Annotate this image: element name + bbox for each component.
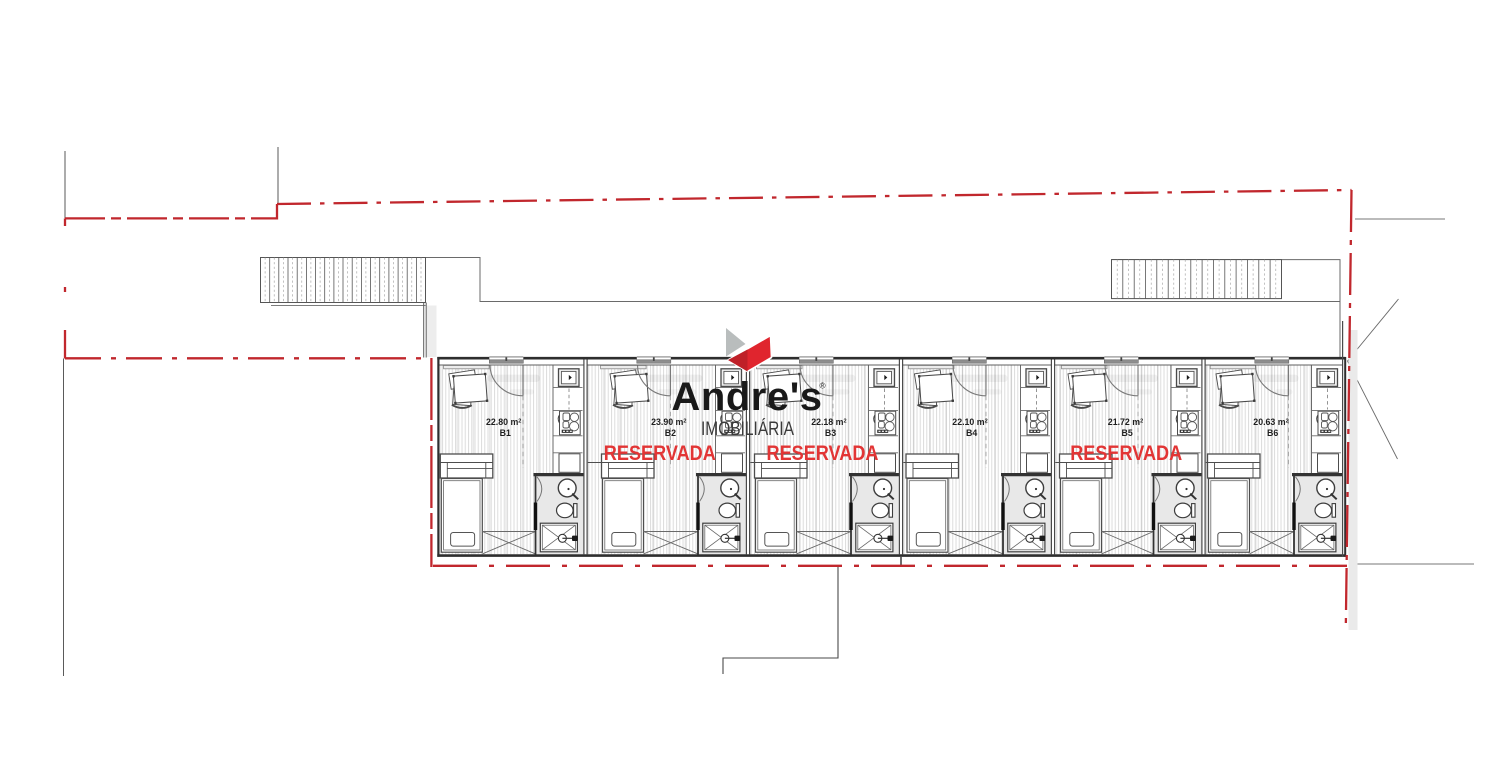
svg-text:RESERVADA: RESERVADA <box>604 442 716 465</box>
svg-text:Andre's: Andre's <box>671 375 822 419</box>
svg-text:21.72 m2: 21.72 m2 <box>1108 417 1143 427</box>
svg-text:B2: B2 <box>665 428 676 438</box>
svg-text:20.63 m2: 20.63 m2 <box>1253 417 1288 427</box>
svg-text:RESERVADA: RESERVADA <box>1070 442 1182 465</box>
svg-text:22.10 m2: 22.10 m2 <box>952 417 987 427</box>
svg-text:B3: B3 <box>825 428 836 438</box>
svg-text:®: ® <box>820 382 826 391</box>
svg-text:IMOBILIÁRIA: IMOBILIÁRIA <box>701 417 794 440</box>
svg-text:22.80 m2: 22.80 m2 <box>486 417 521 427</box>
svg-text:RESERVADA: RESERVADA <box>767 442 879 465</box>
svg-text:B5: B5 <box>1121 428 1132 438</box>
svg-text:B1: B1 <box>500 428 511 438</box>
svg-text:B6: B6 <box>1267 428 1278 438</box>
svg-text:B4: B4 <box>966 428 977 438</box>
